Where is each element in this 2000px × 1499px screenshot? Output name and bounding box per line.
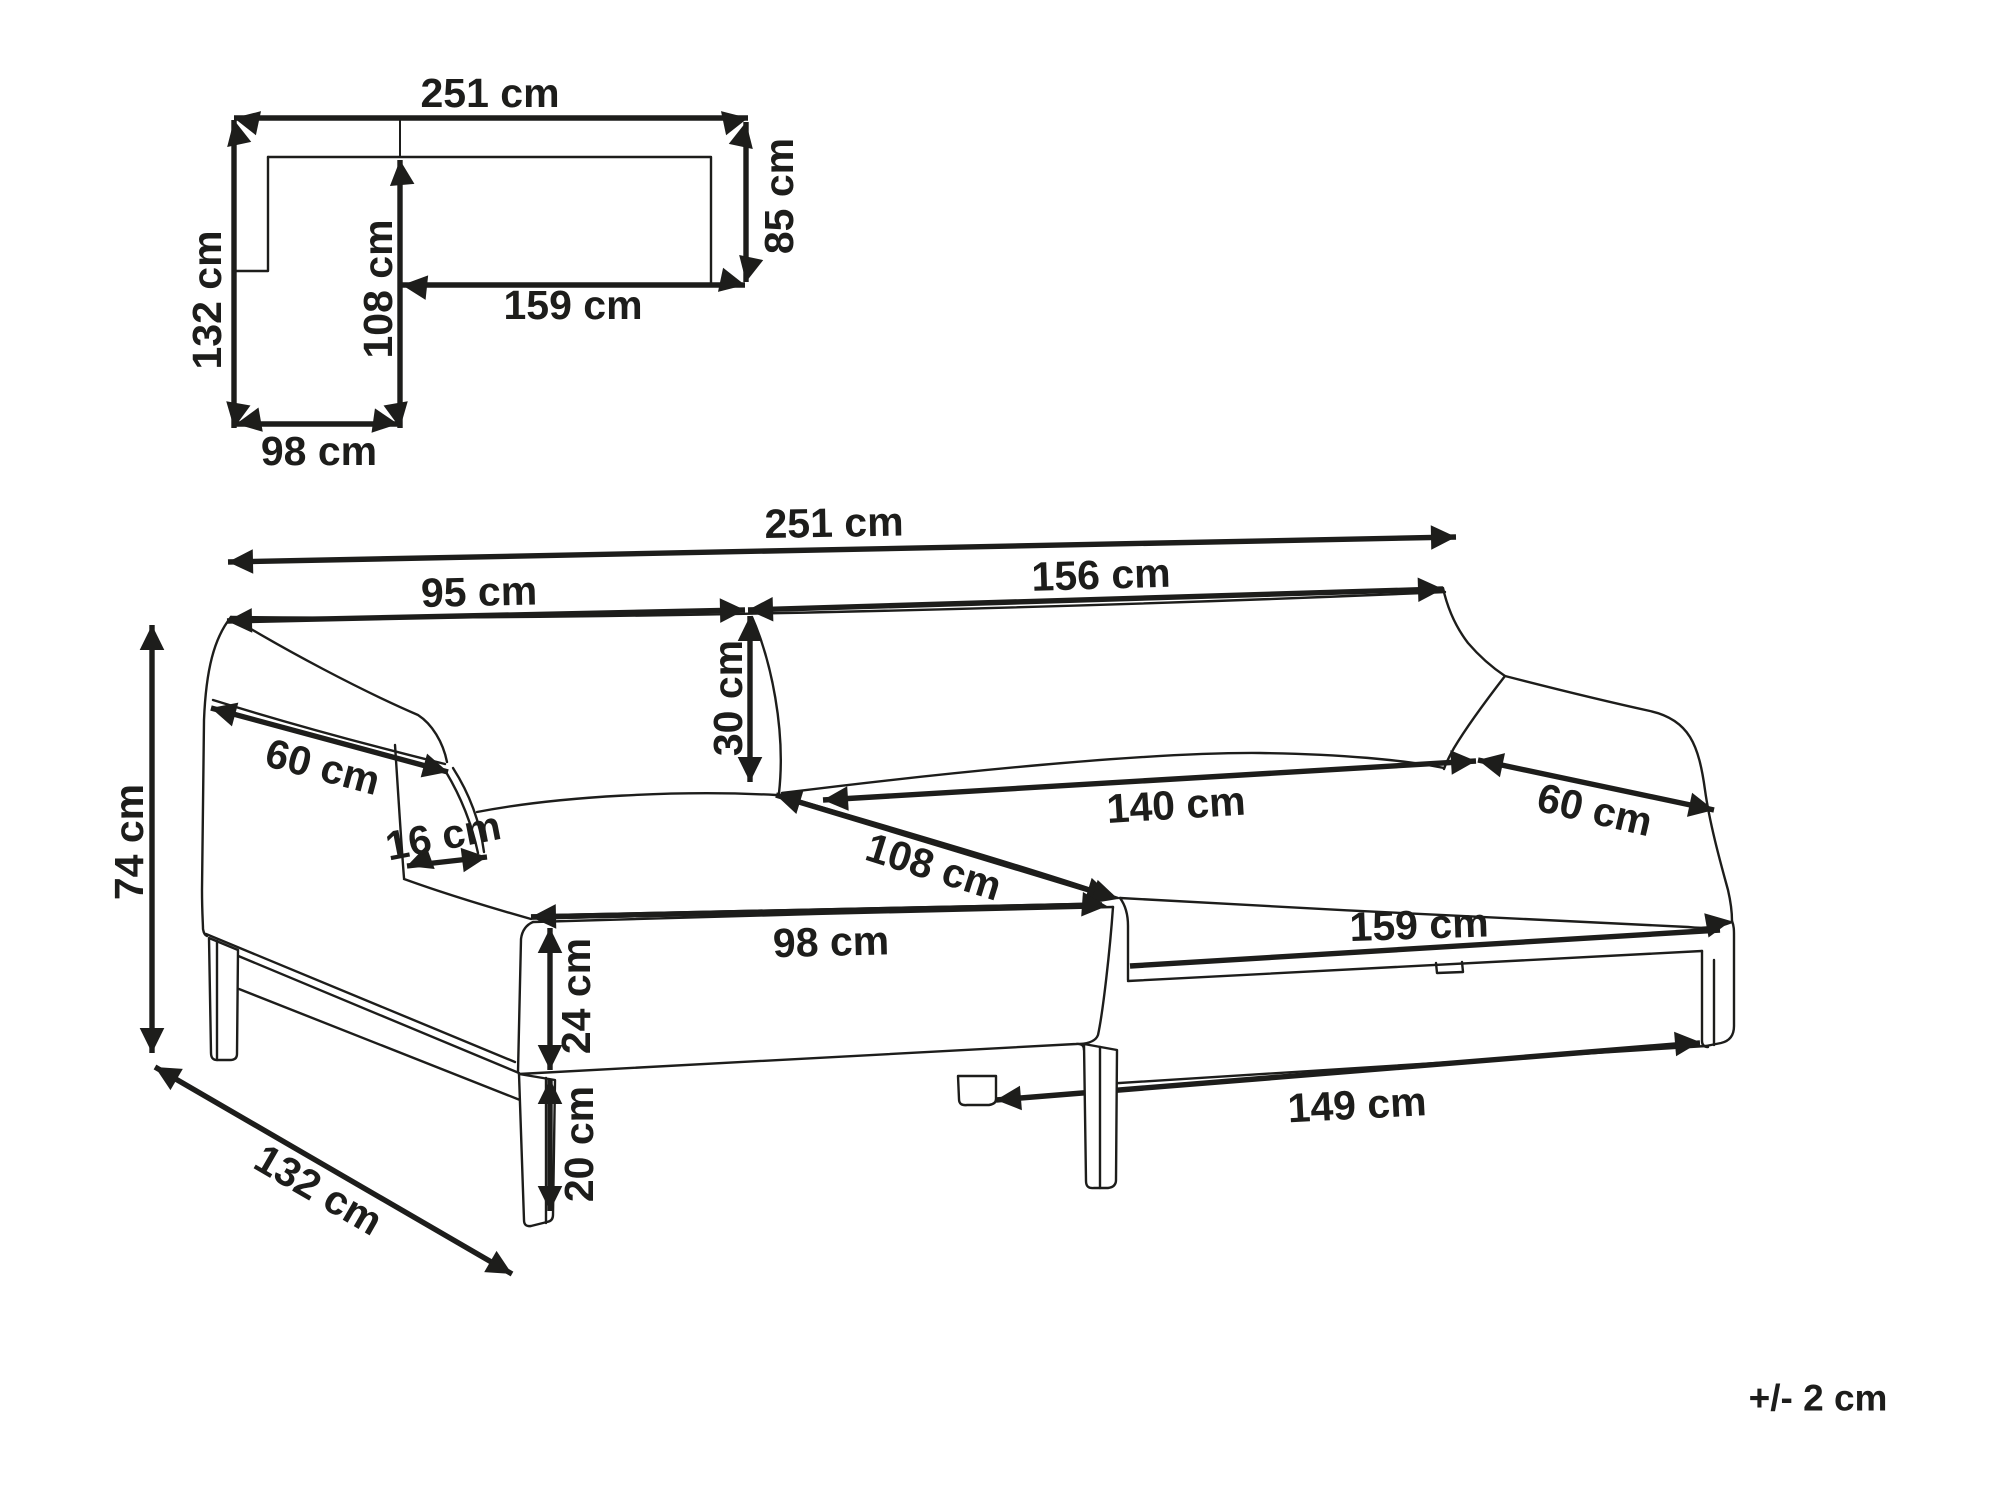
svg-text:149 cm: 149 cm [1286, 1078, 1427, 1131]
svg-text:108 cm: 108 cm [355, 219, 401, 358]
svg-text:95 cm: 95 cm [420, 568, 537, 616]
svg-text:251 cm: 251 cm [420, 70, 559, 116]
svg-text:+/- 2 cm: +/- 2 cm [1749, 1377, 1888, 1418]
svg-text:159 cm: 159 cm [503, 282, 642, 328]
svg-text:98 cm: 98 cm [772, 917, 889, 966]
svg-text:24 cm: 24 cm [553, 938, 599, 1054]
svg-text:85 cm: 85 cm [756, 138, 802, 254]
svg-text:30 cm: 30 cm [705, 640, 751, 756]
svg-text:156 cm: 156 cm [1031, 550, 1171, 600]
svg-text:159 cm: 159 cm [1349, 899, 1490, 950]
svg-text:140 cm: 140 cm [1105, 778, 1247, 832]
svg-text:74 cm: 74 cm [106, 784, 152, 900]
svg-text:98 cm: 98 cm [261, 428, 377, 474]
svg-text:20 cm: 20 cm [556, 1086, 602, 1202]
svg-text:251 cm: 251 cm [764, 499, 904, 547]
svg-text:132 cm: 132 cm [184, 230, 230, 369]
